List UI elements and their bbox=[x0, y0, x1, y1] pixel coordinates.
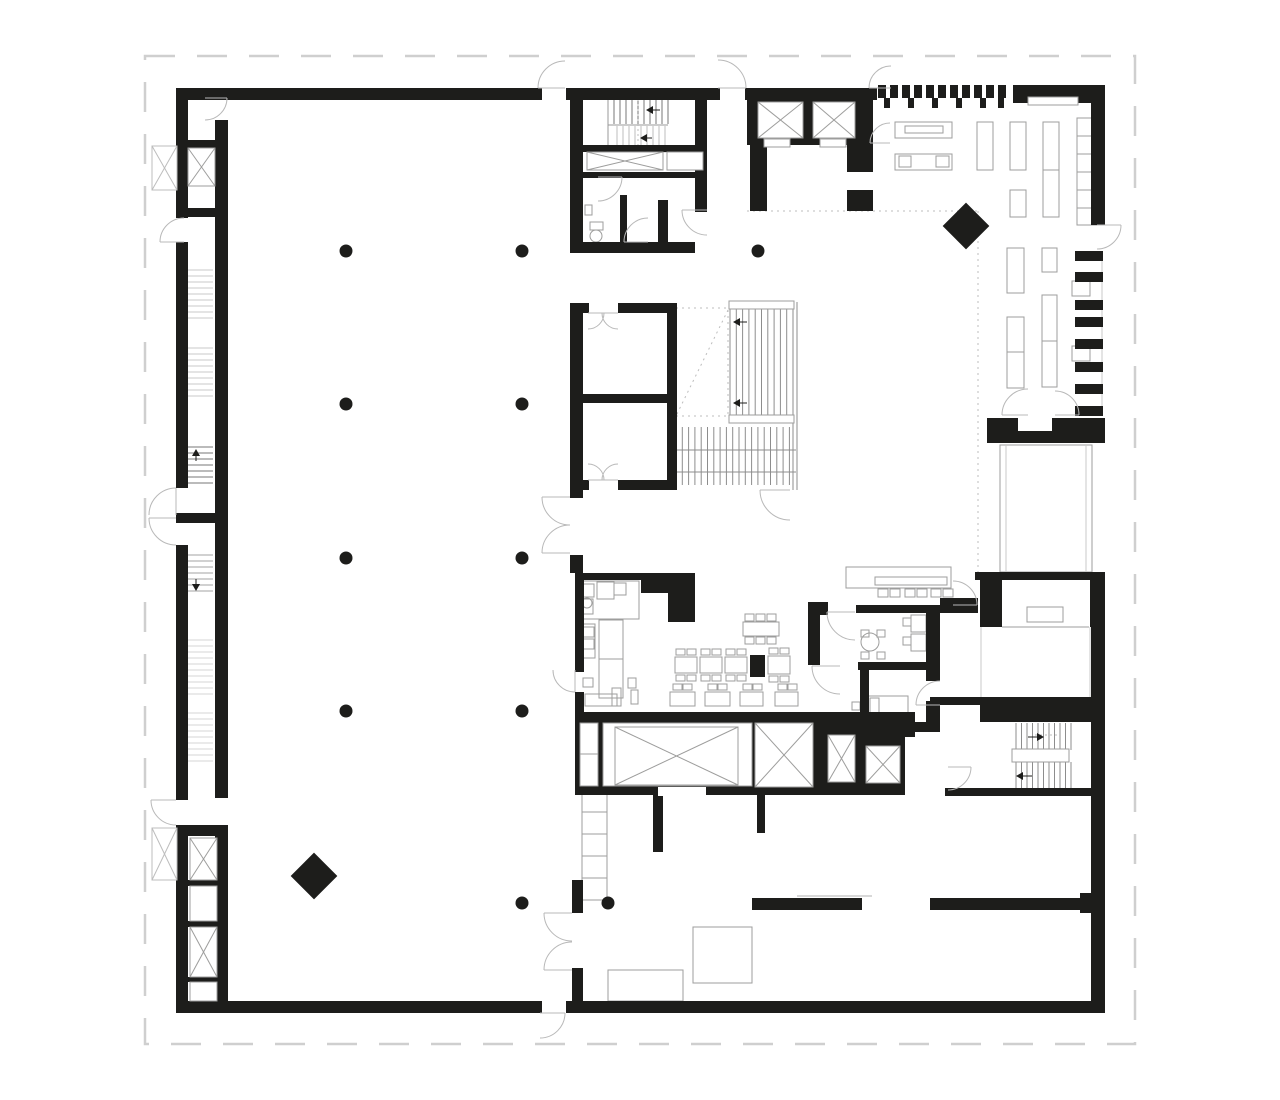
floor-plan bbox=[0, 0, 1280, 1100]
stairs bbox=[188, 98, 1071, 790]
stair-direction-arrows bbox=[192, 106, 1044, 780]
floor-plan-svg bbox=[0, 0, 1280, 1100]
door-swings bbox=[149, 60, 1121, 1038]
site-boundary bbox=[145, 56, 1135, 1044]
zone-dotted-lines bbox=[676, 211, 978, 572]
